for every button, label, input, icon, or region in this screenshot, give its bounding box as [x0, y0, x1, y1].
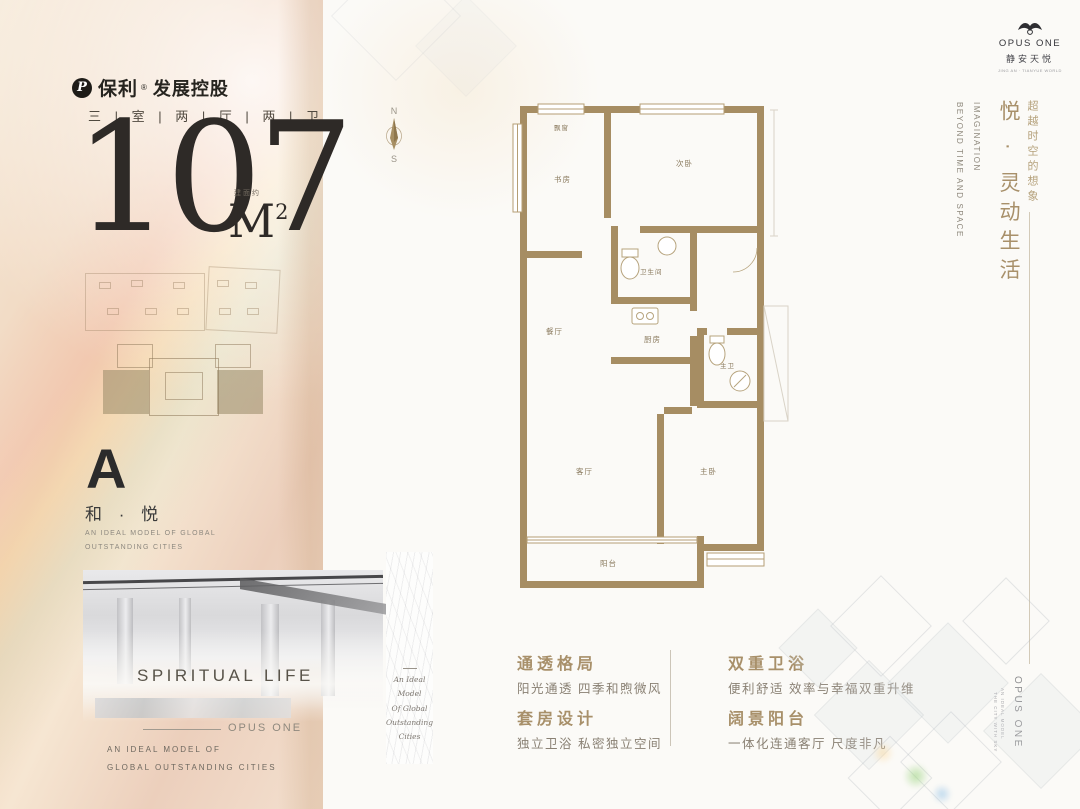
compass: N S [382, 106, 406, 164]
photo-rule-label: OPUS ONE [228, 722, 302, 734]
opus-one-logo: OPUS ONE 静安天悦 JING AN · TIANYUE WORLD [994, 20, 1066, 73]
room-label: 主卫 [720, 361, 735, 370]
unit-letter: A [86, 436, 126, 501]
area-unit-block: 建面约 M2 [228, 188, 288, 244]
room-label: 厨房 [644, 334, 661, 344]
photo-caption: AN IDEAL MODEL OF GLOBAL OUTSTANDING CIT… [107, 741, 277, 776]
floor-plan-dimension-lines [764, 110, 788, 421]
room-label: 阳台 [600, 558, 617, 568]
opus-one-logo-sub: JING AN · TIANYUE WORLD [994, 68, 1066, 73]
compass-south-label: S [382, 154, 406, 164]
right-tagline-en-1: IMAGINATION [972, 102, 981, 172]
script-line: Model [386, 687, 433, 701]
opus-one-wings-icon [1017, 20, 1043, 36]
area-unit-sup: 2 [275, 200, 288, 224]
unit-name: 和 · 悦 [85, 500, 164, 525]
poster-canvas: P 保利 ® 发展控股 三 | 室 | 两 | 厅 | 两 | 卫 107 建面… [0, 0, 1080, 809]
photo-title: SPIRITUAL LIFE [137, 666, 314, 686]
photo-caption-line2: GLOBAL OUTSTANDING CITIES [107, 759, 277, 777]
room-label: 主卧 [700, 466, 717, 476]
feature-desc-1: 阳光通透 四季和煦微风 [517, 678, 662, 697]
room-label: 次卧 [676, 158, 693, 168]
script-caption: An Ideal Model Of Global Outstanding Cit… [386, 668, 433, 744]
right-tagline-cn-small: 超越时空的想象 [1024, 100, 1040, 205]
room-label: 餐厅 [546, 327, 563, 336]
room-label: 客厅 [576, 466, 593, 476]
opus-one-logo-name: OPUS ONE [994, 38, 1066, 49]
unit-tagline-line2: OUTSTANDING CITIES [85, 541, 216, 555]
room-label: 飘窗 [554, 123, 569, 132]
area-unit-m: M [228, 194, 275, 248]
area-number: 107 [74, 98, 349, 258]
right-tagline-en-2: BEYOND TIME AND SPACE [955, 102, 964, 238]
feature-title-2: 套房设计 [517, 705, 597, 729]
room-label: 书房 [554, 174, 571, 184]
feature-divider [670, 650, 671, 746]
script-line: Outstanding [386, 716, 433, 730]
floor-plan: 飘窗 书房 次卧 卫生间 厨房 餐厅 主卫 客厅 主卧 阳台 [512, 96, 792, 601]
unit-tagline: AN IDEAL MODEL OF GLOBAL OUTSTANDING CIT… [85, 527, 216, 555]
compass-needle-icon [386, 116, 402, 152]
compass-north-label: N [382, 106, 406, 116]
opus-one-logo-cn: 静安天悦 [994, 52, 1066, 65]
unit-tagline-line1: AN IDEAL MODEL OF GLOBAL [85, 527, 216, 541]
script-line: An Ideal [386, 673, 433, 687]
script-line: Of Global [386, 702, 433, 716]
photo-rule [143, 729, 221, 730]
feature-title-1: 通透格局 [517, 650, 597, 674]
building-plate-diagram [103, 344, 263, 422]
floor-plan-fixtures [621, 237, 757, 391]
room-label: 卫生间 [640, 267, 663, 276]
site-plan-sketch [85, 268, 280, 334]
right-vertical-rule [1029, 212, 1030, 664]
photo-marble-band [95, 698, 291, 718]
floor-plan-room-labels: 飘窗 书房 次卧 卫生间 厨房 餐厅 主卫 客厅 主卧 阳台 [546, 123, 735, 568]
photo-caption-line1: AN IDEAL MODEL OF [107, 741, 277, 759]
script-caption-dash [403, 668, 417, 669]
right-tagline-cn-big: 悦 · 灵动生活 [993, 100, 1023, 288]
feature-desc-2: 独立卫浴 私密独立空间 [517, 733, 662, 752]
script-line: Cities [386, 730, 433, 744]
feature-title-4: 阔景阳台 [728, 705, 808, 729]
